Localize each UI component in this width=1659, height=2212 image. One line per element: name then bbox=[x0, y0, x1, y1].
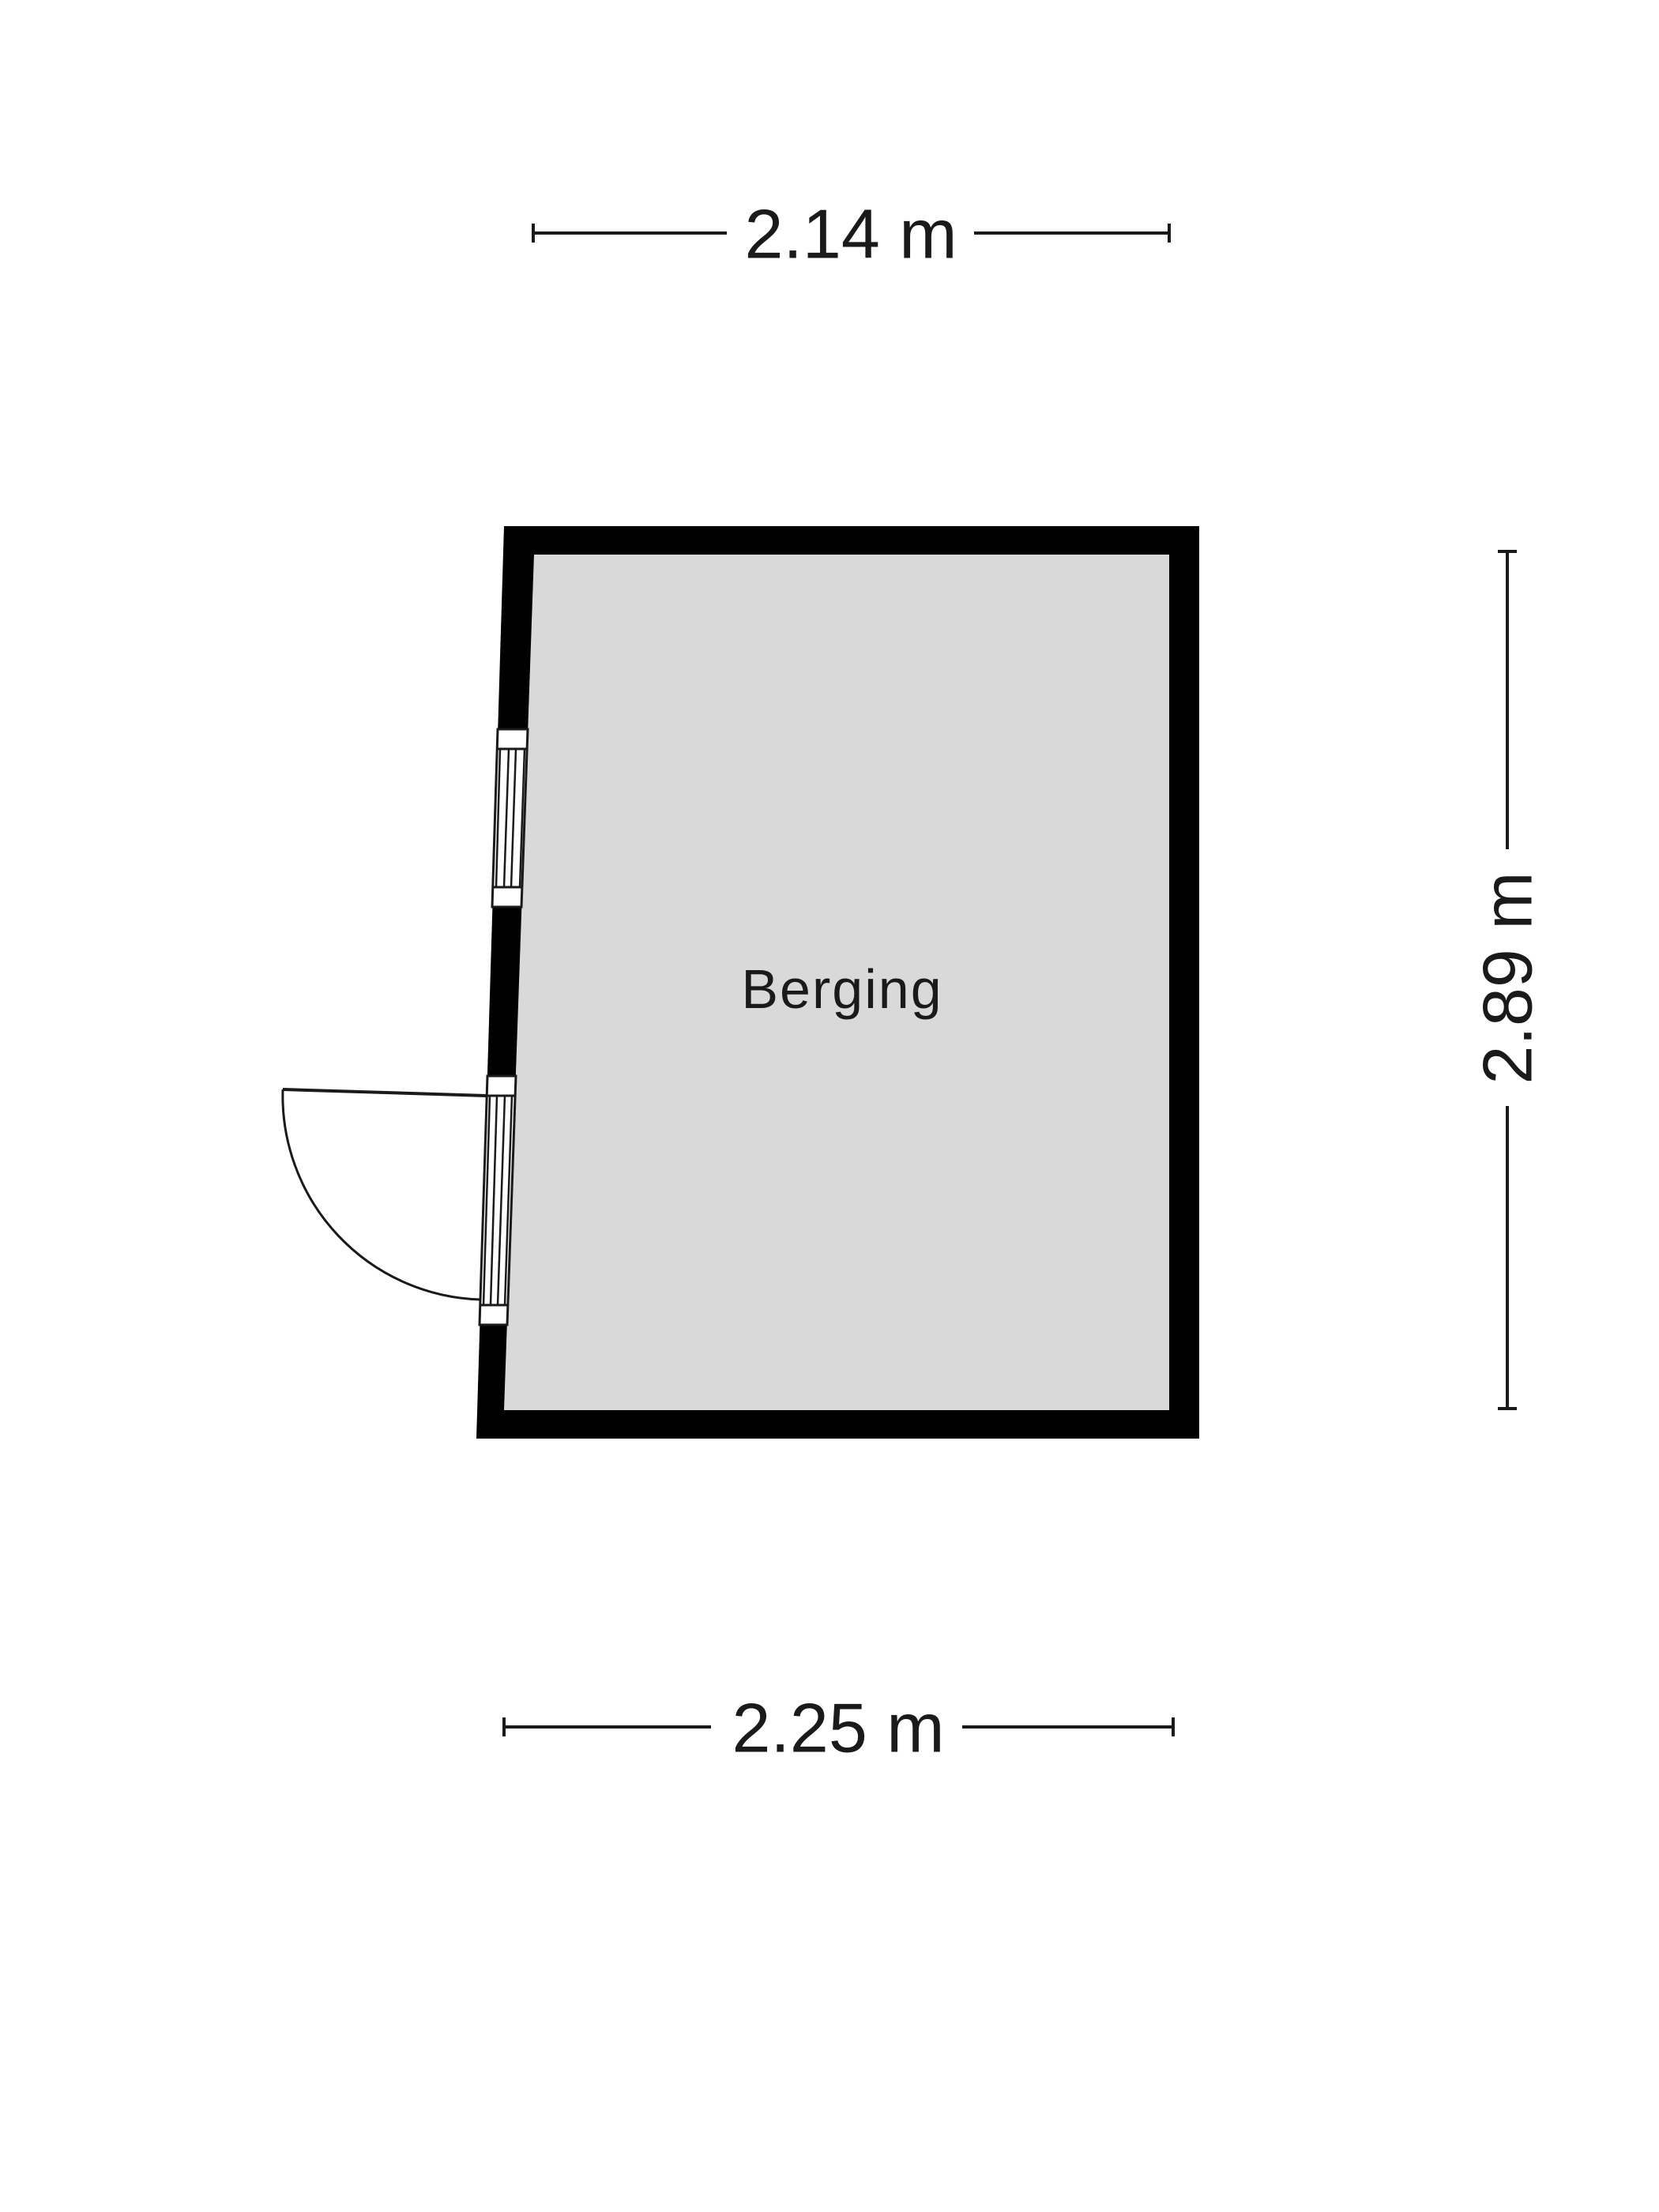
dimension-top: 2.14 m bbox=[533, 195, 1169, 273]
floor-plan-drawing: Berging 2.14 m 2.89 m 2.25 m bbox=[0, 0, 1659, 2212]
dimension-bottom: 2.25 m bbox=[504, 1689, 1173, 1767]
window-symbol bbox=[492, 729, 528, 907]
dimension-right-label: 2.89 m bbox=[1469, 871, 1547, 1084]
door-symbol bbox=[283, 1076, 516, 1325]
dimension-bottom-label: 2.25 m bbox=[732, 1689, 944, 1767]
door-leaf bbox=[283, 1089, 487, 1096]
dimension-right: 2.89 m bbox=[1469, 551, 1547, 1409]
room-label: Berging bbox=[741, 958, 942, 1020]
floor-plan-page: Berging 2.14 m 2.89 m 2.25 m bbox=[0, 0, 1659, 2212]
dimension-top-label: 2.14 m bbox=[744, 195, 957, 273]
door-swing-arc bbox=[283, 1089, 480, 1300]
